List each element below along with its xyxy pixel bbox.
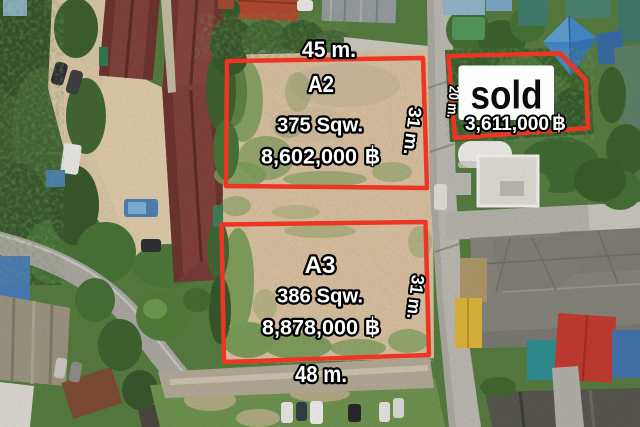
svg-text:45 m.: 45 m. (302, 37, 356, 62)
svg-text:386 Sqw.: 386 Sqw. (277, 286, 363, 308)
svg-text:8,602,000: 8,602,000 (261, 146, 357, 169)
svg-text:48 m.: 48 m. (295, 361, 347, 387)
svg-text:8,878,000: 8,878,000 (262, 317, 358, 340)
svg-text:A3: A3 (305, 252, 336, 279)
svg-text:3,611,000: 3,611,000 (465, 114, 549, 135)
svg-text:375 Sqw.: 375 Sqw. (277, 115, 363, 137)
svg-text:A2: A2 (308, 71, 334, 97)
svg-text:sold: sold (471, 74, 543, 118)
